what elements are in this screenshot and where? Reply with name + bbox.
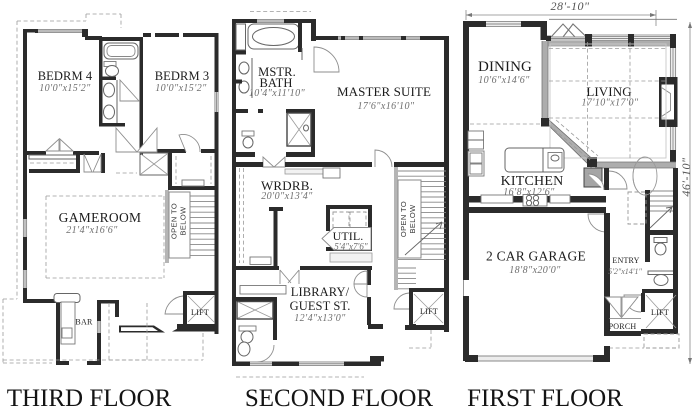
svg-text:18'8"x20'0": 18'8"x20'0" [509, 265, 561, 276]
svg-text:BAR: BAR [75, 318, 93, 327]
svg-text:DINING: DINING [478, 59, 532, 75]
svg-text:BEDRM 4: BEDRM 4 [38, 69, 93, 83]
svg-text:THIRD FLOOR: THIRD FLOOR [7, 385, 172, 412]
svg-text:OPEN TO: OPEN TO [399, 201, 408, 237]
svg-text:10'4"x11'10": 10'4"x11'10" [249, 88, 306, 99]
svg-text:OPEN TO: OPEN TO [170, 203, 179, 239]
svg-text:SECOND FLOOR: SECOND FLOOR [245, 385, 434, 412]
svg-text:MASTER SUITE: MASTER SUITE [337, 84, 431, 99]
svg-text:LIFT: LIFT [651, 308, 669, 317]
svg-text:20'0"x13'4": 20'0"x13'4" [261, 191, 313, 202]
svg-text:17'6"x16'10": 17'6"x16'10" [358, 101, 415, 112]
svg-text:2 CAR GARAGE: 2 CAR GARAGE [486, 249, 586, 264]
svg-text:GUEST ST.: GUEST ST. [290, 299, 351, 313]
svg-text:10'6"x14'6": 10'6"x14'6" [478, 75, 530, 86]
svg-text:5'2"x14'1": 5'2"x14'1" [608, 267, 642, 276]
svg-text:10'0"x15'2": 10'0"x15'2" [155, 83, 207, 94]
svg-text:46'-10": 46'-10" [679, 157, 693, 197]
svg-text:5'4"x7'6": 5'4"x7'6" [334, 242, 368, 252]
svg-text:10'0"x15'2": 10'0"x15'2" [39, 83, 91, 94]
svg-text:FIRST FLOOR: FIRST FLOOR [467, 385, 623, 412]
svg-text:BELOW: BELOW [408, 204, 417, 234]
svg-text:28'-10": 28'-10" [550, 0, 590, 13]
svg-text:LIFT: LIFT [420, 307, 438, 316]
svg-text:LIBRARY/: LIBRARY/ [291, 285, 350, 299]
svg-text:21'4"x16'6": 21'4"x16'6" [66, 225, 118, 236]
svg-text:BEDRM 3: BEDRM 3 [155, 69, 210, 83]
svg-text:GAMEROOM: GAMEROOM [59, 210, 142, 225]
svg-text:12'4"x13'0": 12'4"x13'0" [294, 313, 346, 324]
svg-text:LIFT: LIFT [191, 308, 209, 317]
svg-text:PORCH: PORCH [609, 322, 637, 331]
svg-text:ENTRY: ENTRY [612, 256, 639, 265]
svg-text:17'10"x17'0": 17'10"x17'0" [582, 98, 639, 109]
svg-text:BELOW: BELOW [179, 206, 188, 236]
svg-text:16'8"x12'6": 16'8"x12'6" [503, 187, 555, 198]
